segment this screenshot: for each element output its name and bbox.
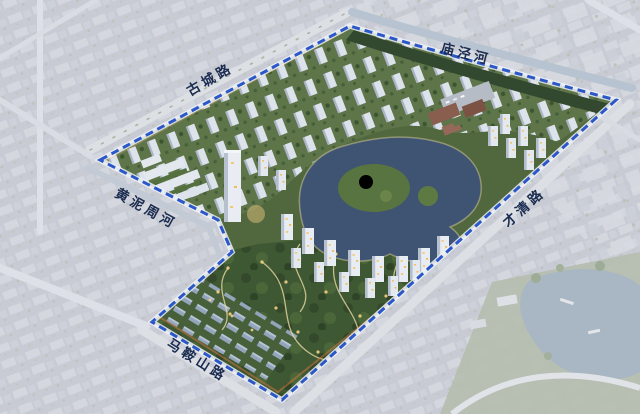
masterplan-screenshot: 古城路 庙泾河 黄泥周河 才清路 马鞍山路 [0,0,640,414]
tower [536,138,546,158]
tower [524,150,534,170]
tower [500,114,510,134]
entry-plaza-glow [247,205,265,223]
masterplan-rendering: 古城路 庙泾河 黄泥周河 才清路 马鞍山路 [0,0,640,414]
tower [339,272,349,292]
tower [281,214,293,240]
tower [291,248,301,268]
tower [388,276,398,296]
tower [314,262,324,282]
tower [506,138,516,158]
tower [258,156,268,176]
tower [276,170,286,190]
tower [348,250,360,276]
tower [365,278,375,298]
tower [518,126,528,146]
tower [302,228,314,254]
tower [324,240,336,266]
lake-islet [418,186,438,206]
tower [488,126,498,146]
lake-island [338,164,410,212]
landmark-tower [224,150,241,222]
